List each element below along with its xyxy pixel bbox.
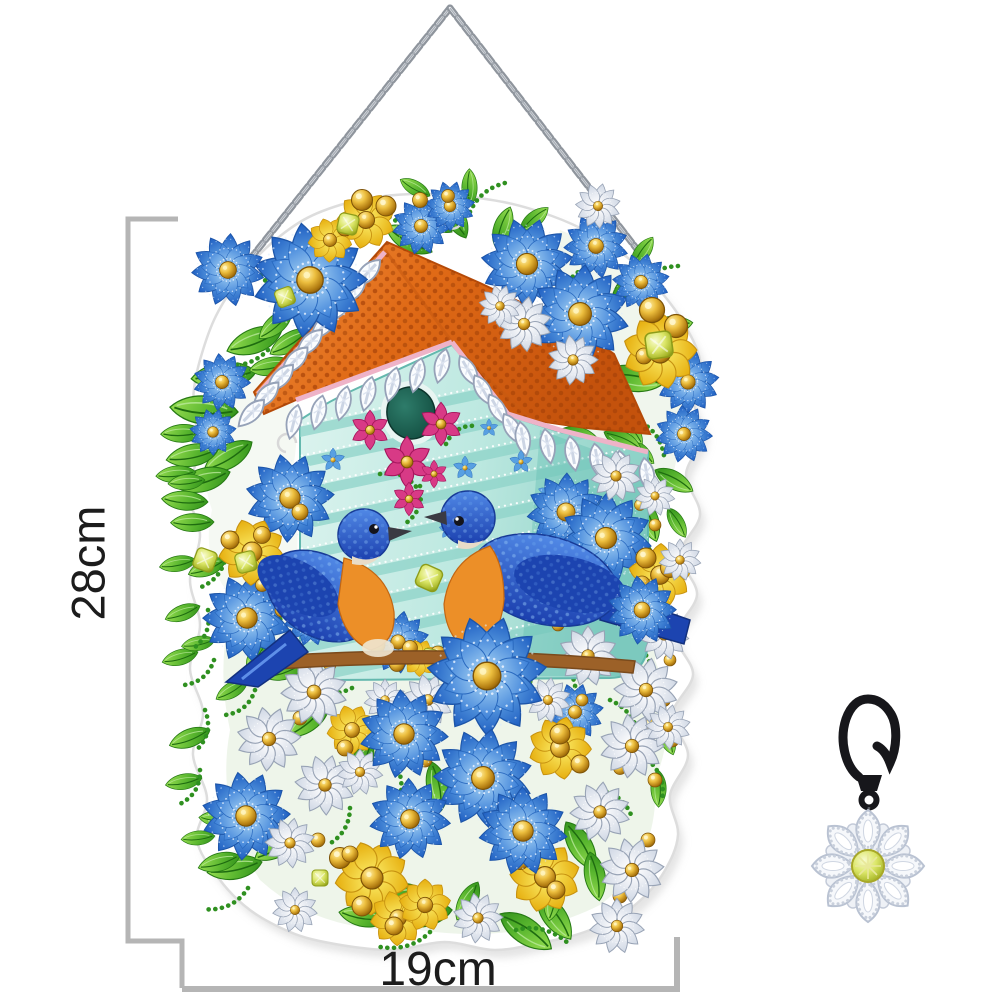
svg-text:19cm: 19cm <box>379 943 496 996</box>
svg-text:28cm: 28cm <box>62 506 115 621</box>
